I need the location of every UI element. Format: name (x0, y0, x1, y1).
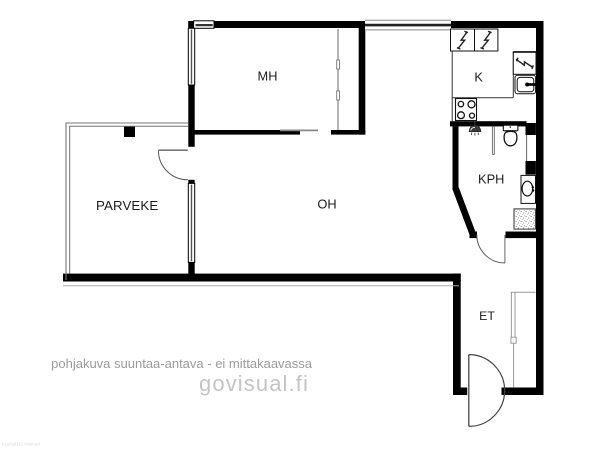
svg-text:o1a5tjd113-tmwnavt: o1a5tjd113-tmwnavt (2, 442, 41, 447)
svg-text:OH: OH (317, 197, 336, 212)
svg-text:MH: MH (258, 68, 278, 83)
svg-text:pohjakuva suuntaa-antava - ei: pohjakuva suuntaa-antava - ei mittakaava… (51, 356, 313, 371)
svg-text:PARVEKE: PARVEKE (96, 198, 158, 213)
svg-text:K: K (474, 70, 483, 85)
svg-text:KPH: KPH (478, 172, 504, 187)
svg-text:govisual.fi: govisual.fi (199, 371, 309, 396)
svg-text:ET: ET (479, 309, 495, 323)
